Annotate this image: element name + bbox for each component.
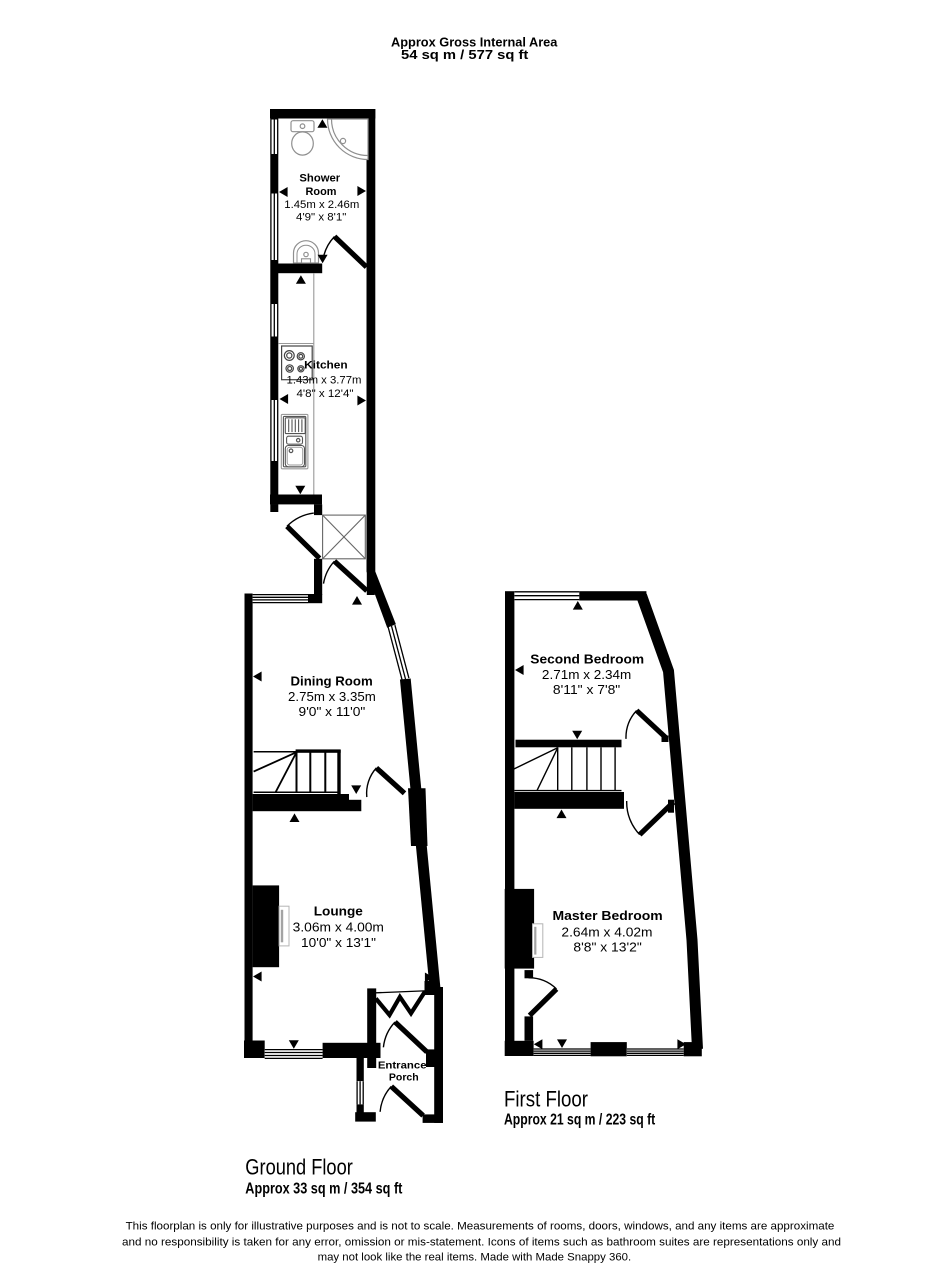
svg-text:Master Bedroom: Master Bedroom: [553, 909, 663, 923]
svg-text:8'8" x 13'2": 8'8" x 13'2": [573, 940, 641, 954]
svg-text:may not look like the real ite: may not look like the real items. Made w…: [318, 1252, 632, 1264]
svg-text:2.75m x 3.35m: 2.75m x 3.35m: [288, 690, 376, 704]
svg-text:Approx 21 sq m / 223 sq ft: Approx 21 sq m / 223 sq ft: [504, 1112, 655, 1129]
svg-text:9'0" x 11'0": 9'0" x 11'0": [299, 705, 366, 719]
svg-text:Shower: Shower: [299, 172, 340, 184]
svg-text:Room: Room: [306, 186, 337, 198]
svg-text:This floorplan is only for ill: This floorplan is only for illustrative …: [126, 1221, 835, 1233]
svg-text:Porch: Porch: [389, 1072, 419, 1083]
svg-text:2.71m x 2.34m: 2.71m x 2.34m: [542, 668, 631, 682]
svg-text:Dining Room: Dining Room: [291, 675, 373, 689]
svg-text:and no responsibility is taken: and no responsibility is taken for any e…: [122, 1237, 841, 1249]
svg-text:1.45m x 2.46m: 1.45m x 2.46m: [284, 199, 359, 211]
svg-text:Second Bedroom: Second Bedroom: [530, 653, 644, 667]
svg-text:8'11" x 7'8": 8'11" x 7'8": [553, 683, 620, 697]
svg-text:Entrance: Entrance: [378, 1061, 427, 1072]
svg-text:First Floor: First Floor: [504, 1087, 588, 1112]
svg-text:3.06m x 4.00m: 3.06m x 4.00m: [293, 921, 384, 935]
svg-text:54 sq m / 577 sq ft: 54 sq m / 577 sq ft: [401, 48, 529, 62]
svg-text:4'9" x 8'1": 4'9" x 8'1": [296, 212, 346, 224]
svg-text:1.43m x 3.77m: 1.43m x 3.77m: [287, 375, 362, 387]
svg-text:4'8" x 12'4": 4'8" x 12'4": [297, 388, 354, 400]
svg-text:Approx 33 sq m / 354 sq ft: Approx 33 sq m / 354 sq ft: [245, 1181, 402, 1198]
svg-text:Kitchen: Kitchen: [304, 360, 348, 372]
svg-text:Lounge: Lounge: [314, 905, 363, 919]
svg-text:Ground Floor: Ground Floor: [245, 1154, 352, 1179]
svg-text:10'0" x 13'1": 10'0" x 13'1": [301, 936, 376, 950]
svg-text:2.64m x 4.02m: 2.64m x 4.02m: [561, 925, 652, 939]
